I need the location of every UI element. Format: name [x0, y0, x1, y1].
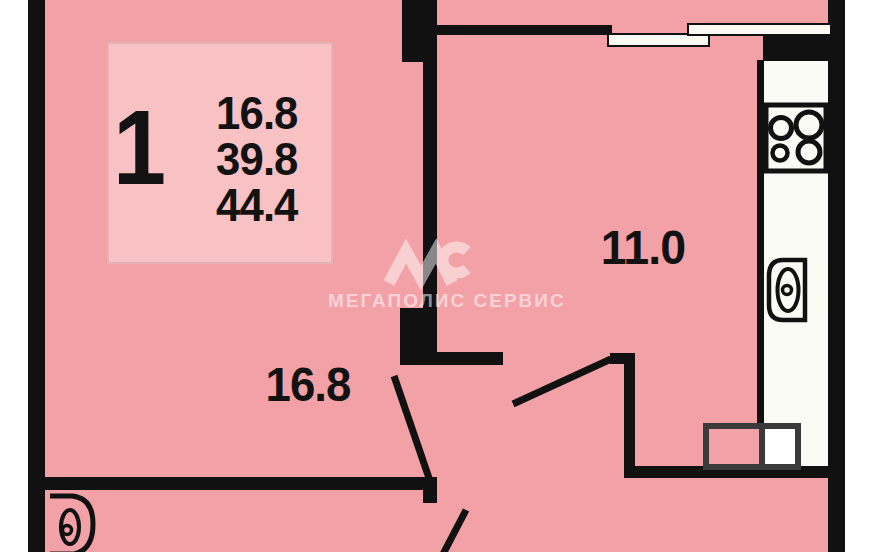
kitchen-counter-edge: [757, 60, 764, 426]
unit-info-box: 1 16.8 39.8 44.4: [107, 42, 333, 264]
wall-middle-foot: [437, 352, 503, 365]
total-area-value: 44.4: [216, 182, 297, 228]
room-count-label: 1: [113, 94, 163, 200]
floor-plan: 1 16.8 39.8 44.4 11.0 16.8: [0, 0, 880, 552]
kitchen-counter: [763, 60, 828, 466]
wall-middle-bottom: [400, 308, 437, 365]
unit-areas: 16.8 39.8 44.4: [216, 90, 297, 228]
watermark-text: МЕГАПОЛИС СЕРВИС: [328, 290, 550, 312]
wall-kitchen-corner-vertical: [624, 353, 635, 477]
living-area-value: 16.8: [216, 90, 297, 136]
wall-living-bottom: [28, 477, 437, 490]
usable-area-value: 39.8: [216, 136, 297, 182]
wall-kitchen-bottom: [624, 466, 845, 478]
wall-top: [433, 25, 612, 35]
window-2: [687, 23, 832, 36]
wall-left: [28, 0, 45, 552]
wall-top-right-block: [763, 33, 828, 61]
wall-living-bottom-stub: [423, 477, 437, 503]
kitchen-area-label: 11.0: [586, 219, 700, 275]
living-area-label: 16.8: [251, 357, 365, 412]
